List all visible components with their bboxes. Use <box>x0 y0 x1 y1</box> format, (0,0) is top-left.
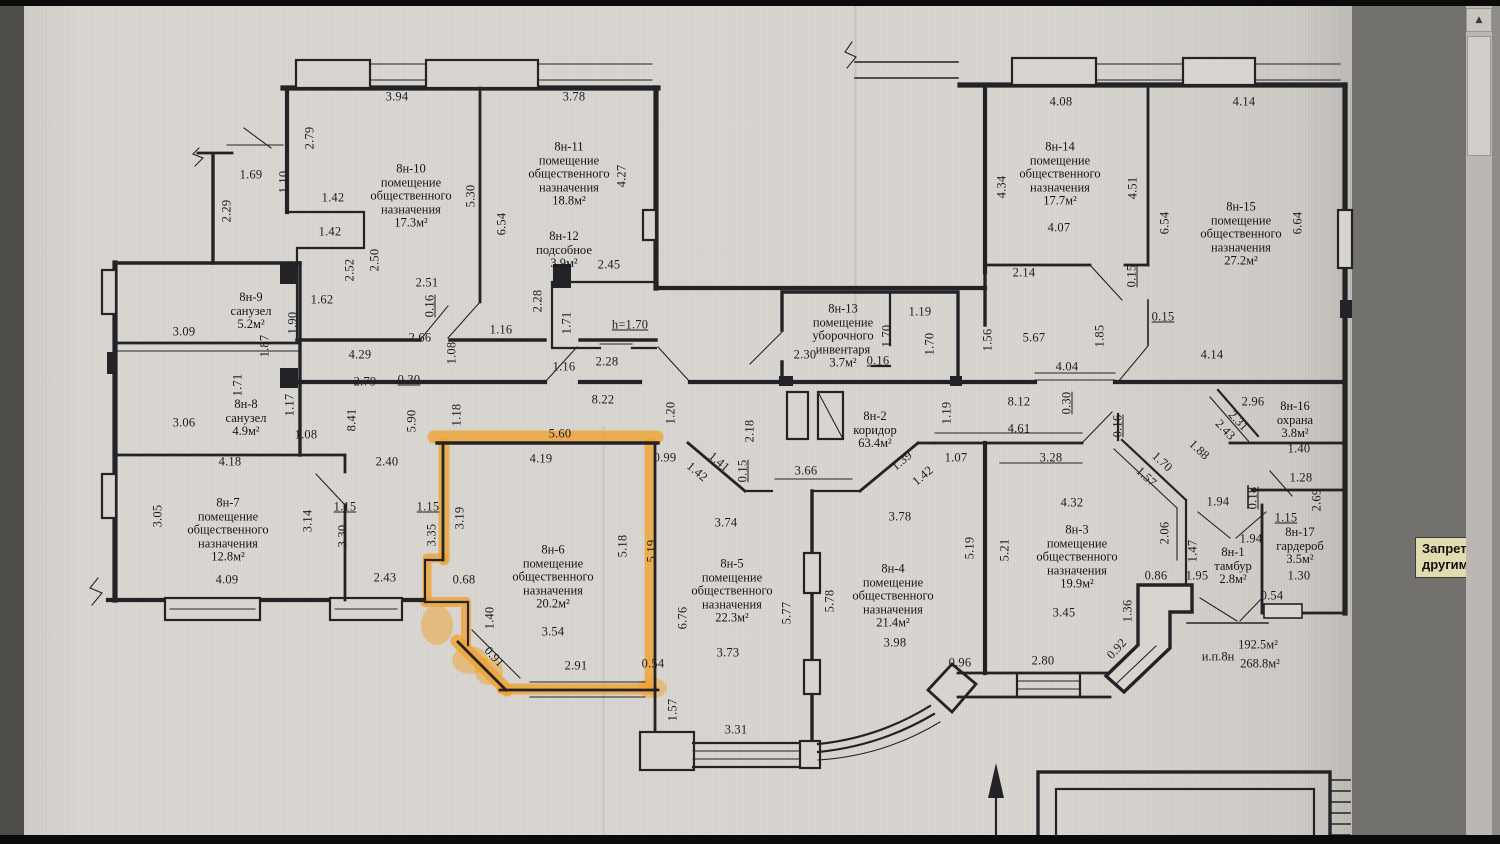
scrollbar-track[interactable]: ▲ <box>1466 6 1492 835</box>
scrollbar-edge-strip <box>1492 6 1500 835</box>
scrollbar-thumb[interactable] <box>1467 36 1491 156</box>
viewer-background-left <box>0 6 24 835</box>
floor-plan-sheet <box>24 6 1352 835</box>
viewer-background-right <box>1352 6 1466 835</box>
viewer-screen: 3.943.782.791.691.102.291.421.425.306.54… <box>0 0 1500 844</box>
paper-crease <box>854 6 857 336</box>
paper-crease <box>602 426 605 835</box>
bottom-letterbox-bar <box>0 835 1500 844</box>
chevron-up-icon: ▲ <box>1476 15 1483 25</box>
scrollbar-up-button[interactable]: ▲ <box>1466 8 1492 32</box>
